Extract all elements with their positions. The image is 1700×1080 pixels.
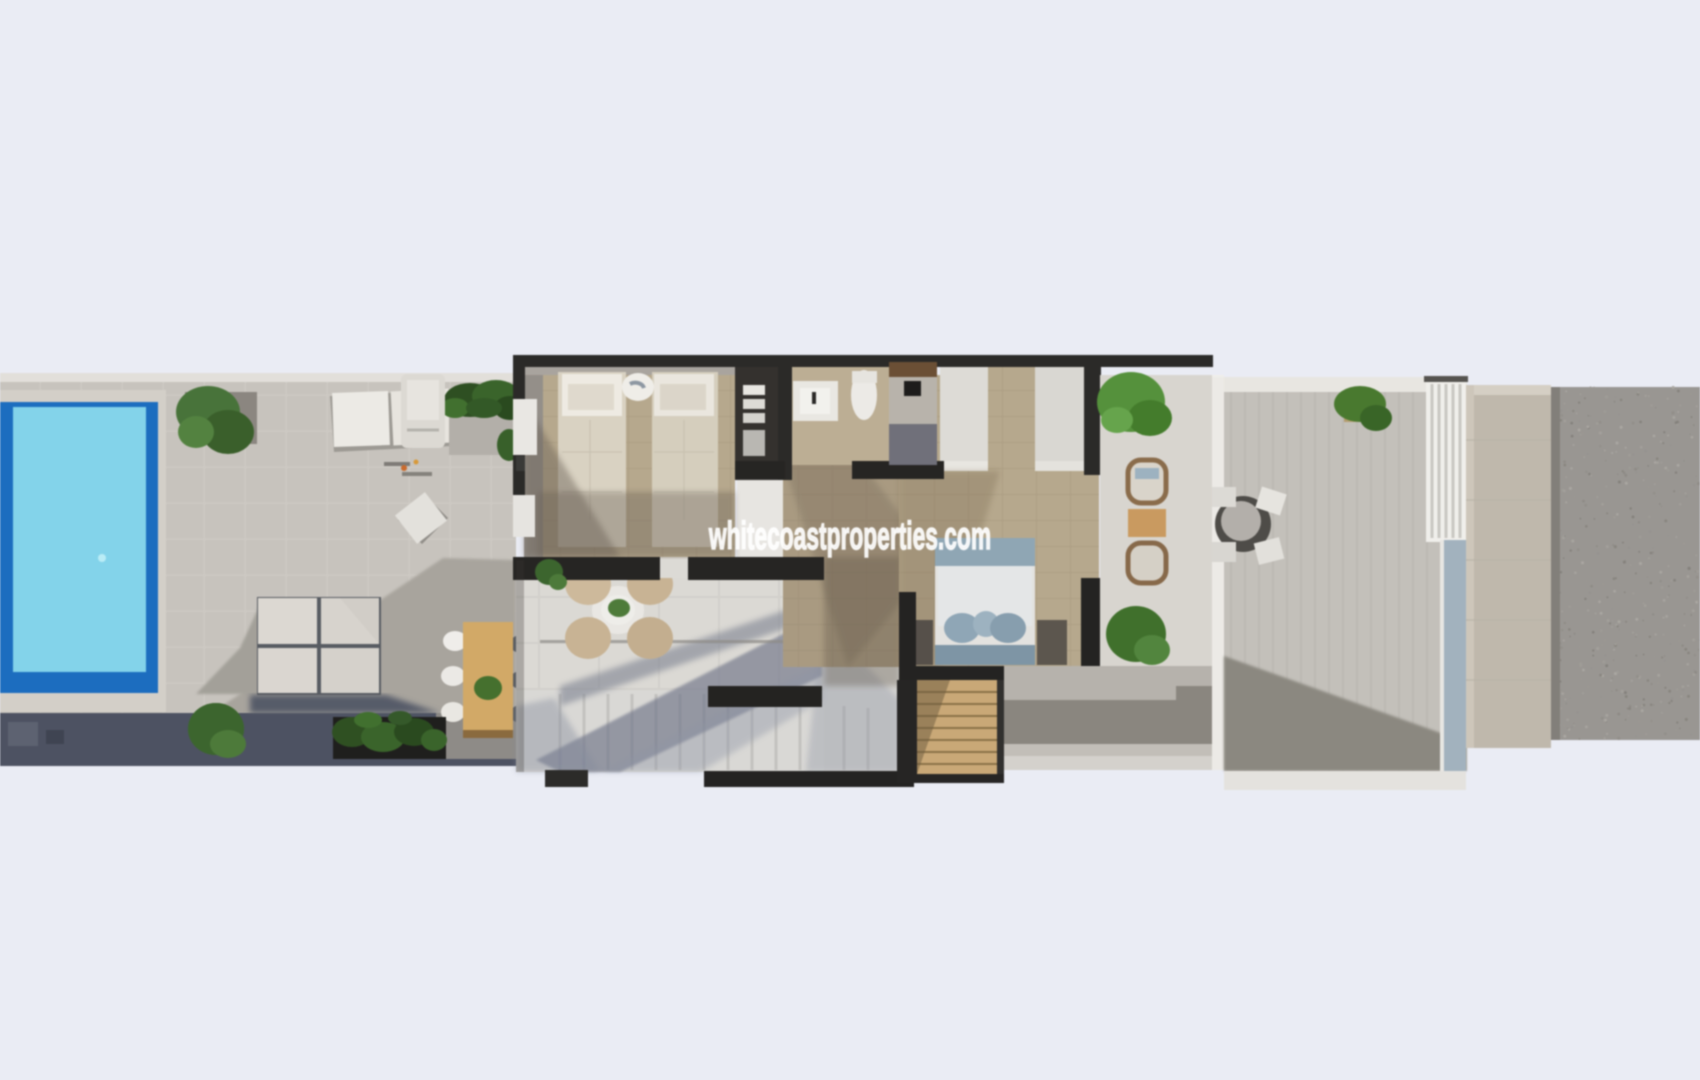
- svg-text:whitecoastproperties.com: whitecoastproperties.com: [708, 514, 991, 558]
